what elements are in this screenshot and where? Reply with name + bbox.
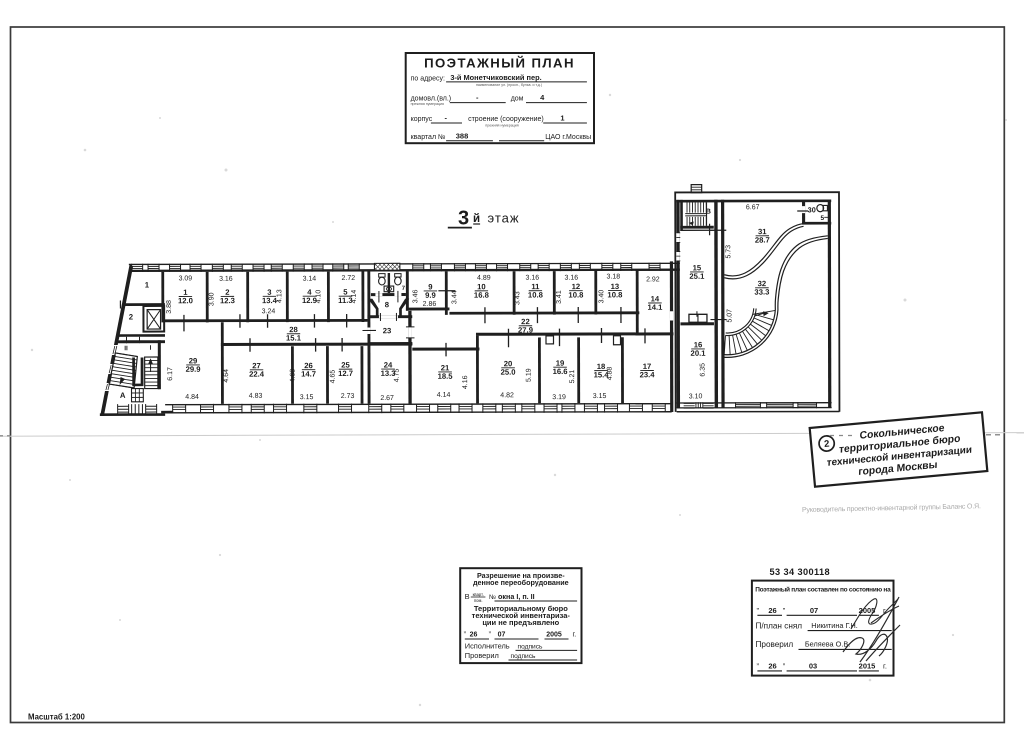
svg-text:14.7: 14.7	[301, 370, 316, 379]
svg-text:30: 30	[808, 205, 816, 214]
svg-text:5.21: 5.21	[569, 370, 576, 384]
svg-text:4.88: 4.88	[607, 367, 614, 381]
svg-text:3.19: 3.19	[552, 394, 566, 401]
svg-text:подпись: подпись	[511, 653, 536, 660]
svg-text:3.46: 3.46	[412, 289, 419, 303]
svg-text:22.4: 22.4	[249, 370, 265, 379]
svg-text:28.7: 28.7	[755, 236, 770, 245]
svg-text:03: 03	[809, 661, 817, 670]
svg-text:дом: дом	[511, 96, 524, 103]
svg-text:1: 1	[145, 280, 150, 289]
svg-text:3: 3	[458, 208, 469, 230]
svg-text:4.89: 4.89	[477, 275, 491, 282]
svg-text:6.35: 6.35	[700, 363, 707, 377]
svg-text:этаж: этаж	[488, 210, 520, 225]
svg-text:В: В	[706, 207, 711, 216]
svg-text:18.5: 18.5	[438, 372, 454, 381]
svg-text:12.3: 12.3	[220, 296, 235, 305]
svg-text:5.07: 5.07	[726, 309, 733, 323]
svg-text:3.18: 3.18	[607, 273, 621, 280]
svg-text:12.0: 12.0	[178, 296, 193, 305]
svg-text:5.73: 5.73	[725, 245, 732, 259]
svg-text:4.68: 4.68	[290, 369, 297, 383]
svg-text:4.84: 4.84	[185, 394, 199, 401]
svg-text:строение (сооружение): строение (сооружение)	[468, 116, 544, 123]
svg-text:4.16: 4.16	[462, 375, 469, 389]
svg-text:квартал №: квартал №	[411, 134, 446, 141]
svg-text:й: й	[473, 213, 480, 225]
svg-text:3.24: 3.24	[262, 308, 276, 315]
svg-text:4.75: 4.75	[394, 369, 401, 383]
svg-text:6.17: 6.17	[167, 367, 174, 381]
svg-text:2.86: 2.86	[423, 301, 437, 308]
svg-text:10.8: 10.8	[528, 291, 544, 300]
svg-text:23: 23	[383, 326, 392, 335]
svg-text:27.9: 27.9	[518, 326, 533, 335]
svg-text:4.65: 4.65	[330, 370, 337, 384]
svg-text:26: 26	[470, 631, 478, 638]
svg-text:2.73: 2.73	[341, 393, 355, 400]
svg-text:07: 07	[810, 606, 818, 615]
svg-text:3.09: 3.09	[179, 275, 193, 282]
svg-text:3.90: 3.90	[209, 292, 216, 306]
svg-text:4.83: 4.83	[249, 393, 263, 400]
svg-text:10.8: 10.8	[607, 290, 623, 299]
svg-text:33.3: 33.3	[754, 288, 769, 297]
svg-text:3.10: 3.10	[689, 393, 703, 400]
svg-text:А: А	[120, 391, 126, 400]
svg-text:2: 2	[824, 439, 830, 450]
svg-text:2.67: 2.67	[380, 395, 394, 402]
svg-text:прежняя нумерация: прежняя нумерация	[485, 124, 518, 128]
svg-text:3.16: 3.16	[526, 275, 540, 282]
svg-text:кварт.: кварт.	[473, 592, 484, 597]
svg-text:10.8: 10.8	[568, 290, 584, 299]
svg-text:2005: 2005	[546, 631, 562, 638]
svg-text:3.40: 3.40	[598, 290, 605, 304]
svg-text:3.41: 3.41	[556, 290, 563, 304]
svg-text:2.72: 2.72	[342, 275, 356, 282]
svg-text:подпись: подпись	[518, 643, 543, 650]
svg-text:ПОЭТАЖНЫЙ ПЛАН: ПОЭТАЖНЫЙ ПЛАН	[424, 56, 575, 71]
svg-text:26: 26	[768, 606, 776, 615]
svg-text:ЦАО г.Москвы: ЦАО г.Москвы	[545, 134, 591, 141]
svg-text:3-й Монетчиковский пер.: 3-й Монетчиковский пер.	[450, 73, 541, 82]
svg-text:16.8: 16.8	[474, 291, 490, 300]
svg-text:3.15: 3.15	[593, 393, 607, 400]
svg-text:Исполнитель: Исполнитель	[465, 641, 510, 650]
svg-text:г.: г.	[883, 661, 887, 670]
svg-text:3.88: 3.88	[166, 300, 173, 314]
svg-text:4.82: 4.82	[500, 392, 514, 399]
svg-text:26: 26	[768, 661, 776, 670]
svg-text:В: В	[465, 592, 470, 601]
svg-text:Масштаб 1:200: Масштаб 1:200	[28, 713, 86, 722]
svg-text:4.14: 4.14	[351, 290, 358, 304]
svg-text:окна I, п. II: окна I, п. II	[498, 592, 535, 601]
svg-text:25.1: 25.1	[689, 272, 705, 281]
svg-text:53 34 300118: 53 34 300118	[770, 567, 831, 577]
svg-text:№: №	[489, 594, 496, 601]
svg-text:3.16: 3.16	[219, 276, 233, 283]
svg-text:по адресу:: по адресу:	[411, 75, 445, 82]
svg-text:4.10: 4.10	[315, 290, 322, 304]
svg-text:Поэтажный план составлен по со: Поэтажный план составлен по состоянию на	[755, 585, 891, 593]
svg-text:3.44: 3.44	[451, 290, 458, 304]
svg-text:23.4: 23.4	[640, 370, 656, 379]
svg-text:Проверил: Проверил	[465, 651, 499, 660]
svg-text:6.67: 6.67	[746, 204, 760, 211]
svg-text:4.64: 4.64	[223, 369, 230, 383]
svg-text:3.43: 3.43	[514, 291, 521, 305]
svg-text:П/план снял: П/план снял	[756, 622, 803, 631]
svg-text:корпус: корпус	[411, 116, 433, 123]
svg-text:3.14: 3.14	[303, 276, 317, 283]
svg-text:25.0: 25.0	[501, 368, 516, 377]
svg-text:29.9: 29.9	[186, 365, 201, 374]
svg-text:4.14: 4.14	[437, 392, 451, 399]
svg-text:1: 1	[560, 113, 564, 122]
svg-text:16.6: 16.6	[553, 367, 568, 376]
svg-text:5: 5	[820, 215, 824, 222]
svg-text:наименование ул. (просп., буль: наименование ул. (просп., бульв. и т.д.)	[476, 83, 542, 87]
svg-text:5.19: 5.19	[526, 368, 533, 382]
svg-text:12.7: 12.7	[338, 369, 353, 378]
svg-text:Беляева О.В.: Беляева О.В.	[805, 640, 850, 649]
svg-text:07: 07	[498, 631, 506, 638]
svg-text:2.92: 2.92	[646, 276, 660, 283]
svg-text:15.1: 15.1	[286, 334, 302, 343]
svg-text:8: 8	[385, 300, 390, 309]
svg-text:пом.: пом.	[474, 598, 483, 603]
svg-text:4.13: 4.13	[276, 289, 283, 303]
svg-text:3.16: 3.16	[565, 275, 579, 282]
svg-text:2015: 2015	[859, 661, 876, 670]
svg-text:II: II	[124, 345, 128, 352]
svg-text:I: I	[150, 345, 152, 352]
svg-text:г.: г.	[573, 631, 577, 638]
svg-text:20.1: 20.1	[691, 349, 707, 358]
svg-text:Проверил: Проверил	[756, 640, 794, 649]
svg-text:прежняя нумерация: прежняя нумерация	[411, 102, 444, 106]
svg-text:3.15: 3.15	[300, 394, 314, 401]
svg-text:ции не предъявлено: ции не предъявлено	[482, 618, 559, 627]
svg-text:13.4: 13.4	[262, 296, 278, 305]
svg-text:2: 2	[129, 312, 134, 321]
svg-text:денное переоборудование: денное переоборудование	[473, 578, 569, 587]
svg-text:9.9: 9.9	[425, 291, 436, 300]
svg-text:14.1: 14.1	[647, 303, 663, 312]
svg-text:388: 388	[456, 131, 469, 140]
